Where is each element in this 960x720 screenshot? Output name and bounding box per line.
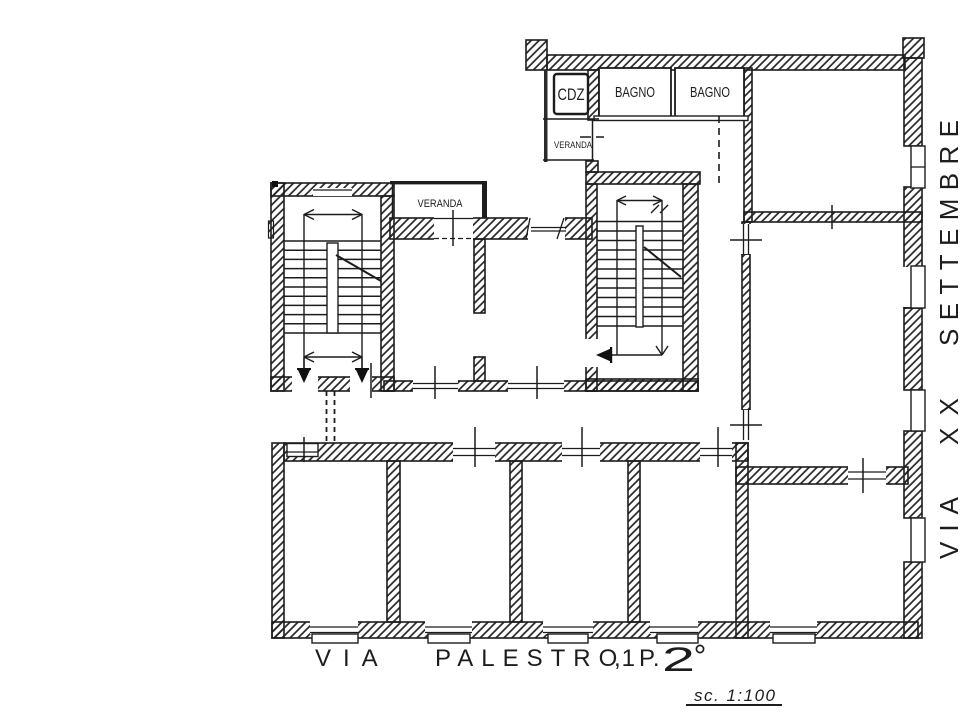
svg-text:CDZ: CDZ xyxy=(558,85,585,104)
svg-text:BAGNO: BAGNO xyxy=(690,84,730,101)
svg-text:P.: P. xyxy=(639,645,661,672)
svg-text:VIA: VIA xyxy=(934,496,960,559)
svg-text:VERANDA: VERANDA xyxy=(554,140,593,151)
svg-text:,1: ,1 xyxy=(614,645,636,672)
svg-text:VERANDA: VERANDA xyxy=(418,198,464,210)
svg-text:BAGNO: BAGNO xyxy=(615,84,655,101)
svg-text:SETTEMBRE: SETTEMBRE xyxy=(934,120,960,346)
svg-text:VIA: VIA xyxy=(315,645,390,672)
svg-text:2: 2 xyxy=(662,641,695,679)
svg-text:PALESTRO: PALESTRO xyxy=(435,645,625,672)
svg-text:sc. 1:100: sc. 1:100 xyxy=(694,686,777,705)
